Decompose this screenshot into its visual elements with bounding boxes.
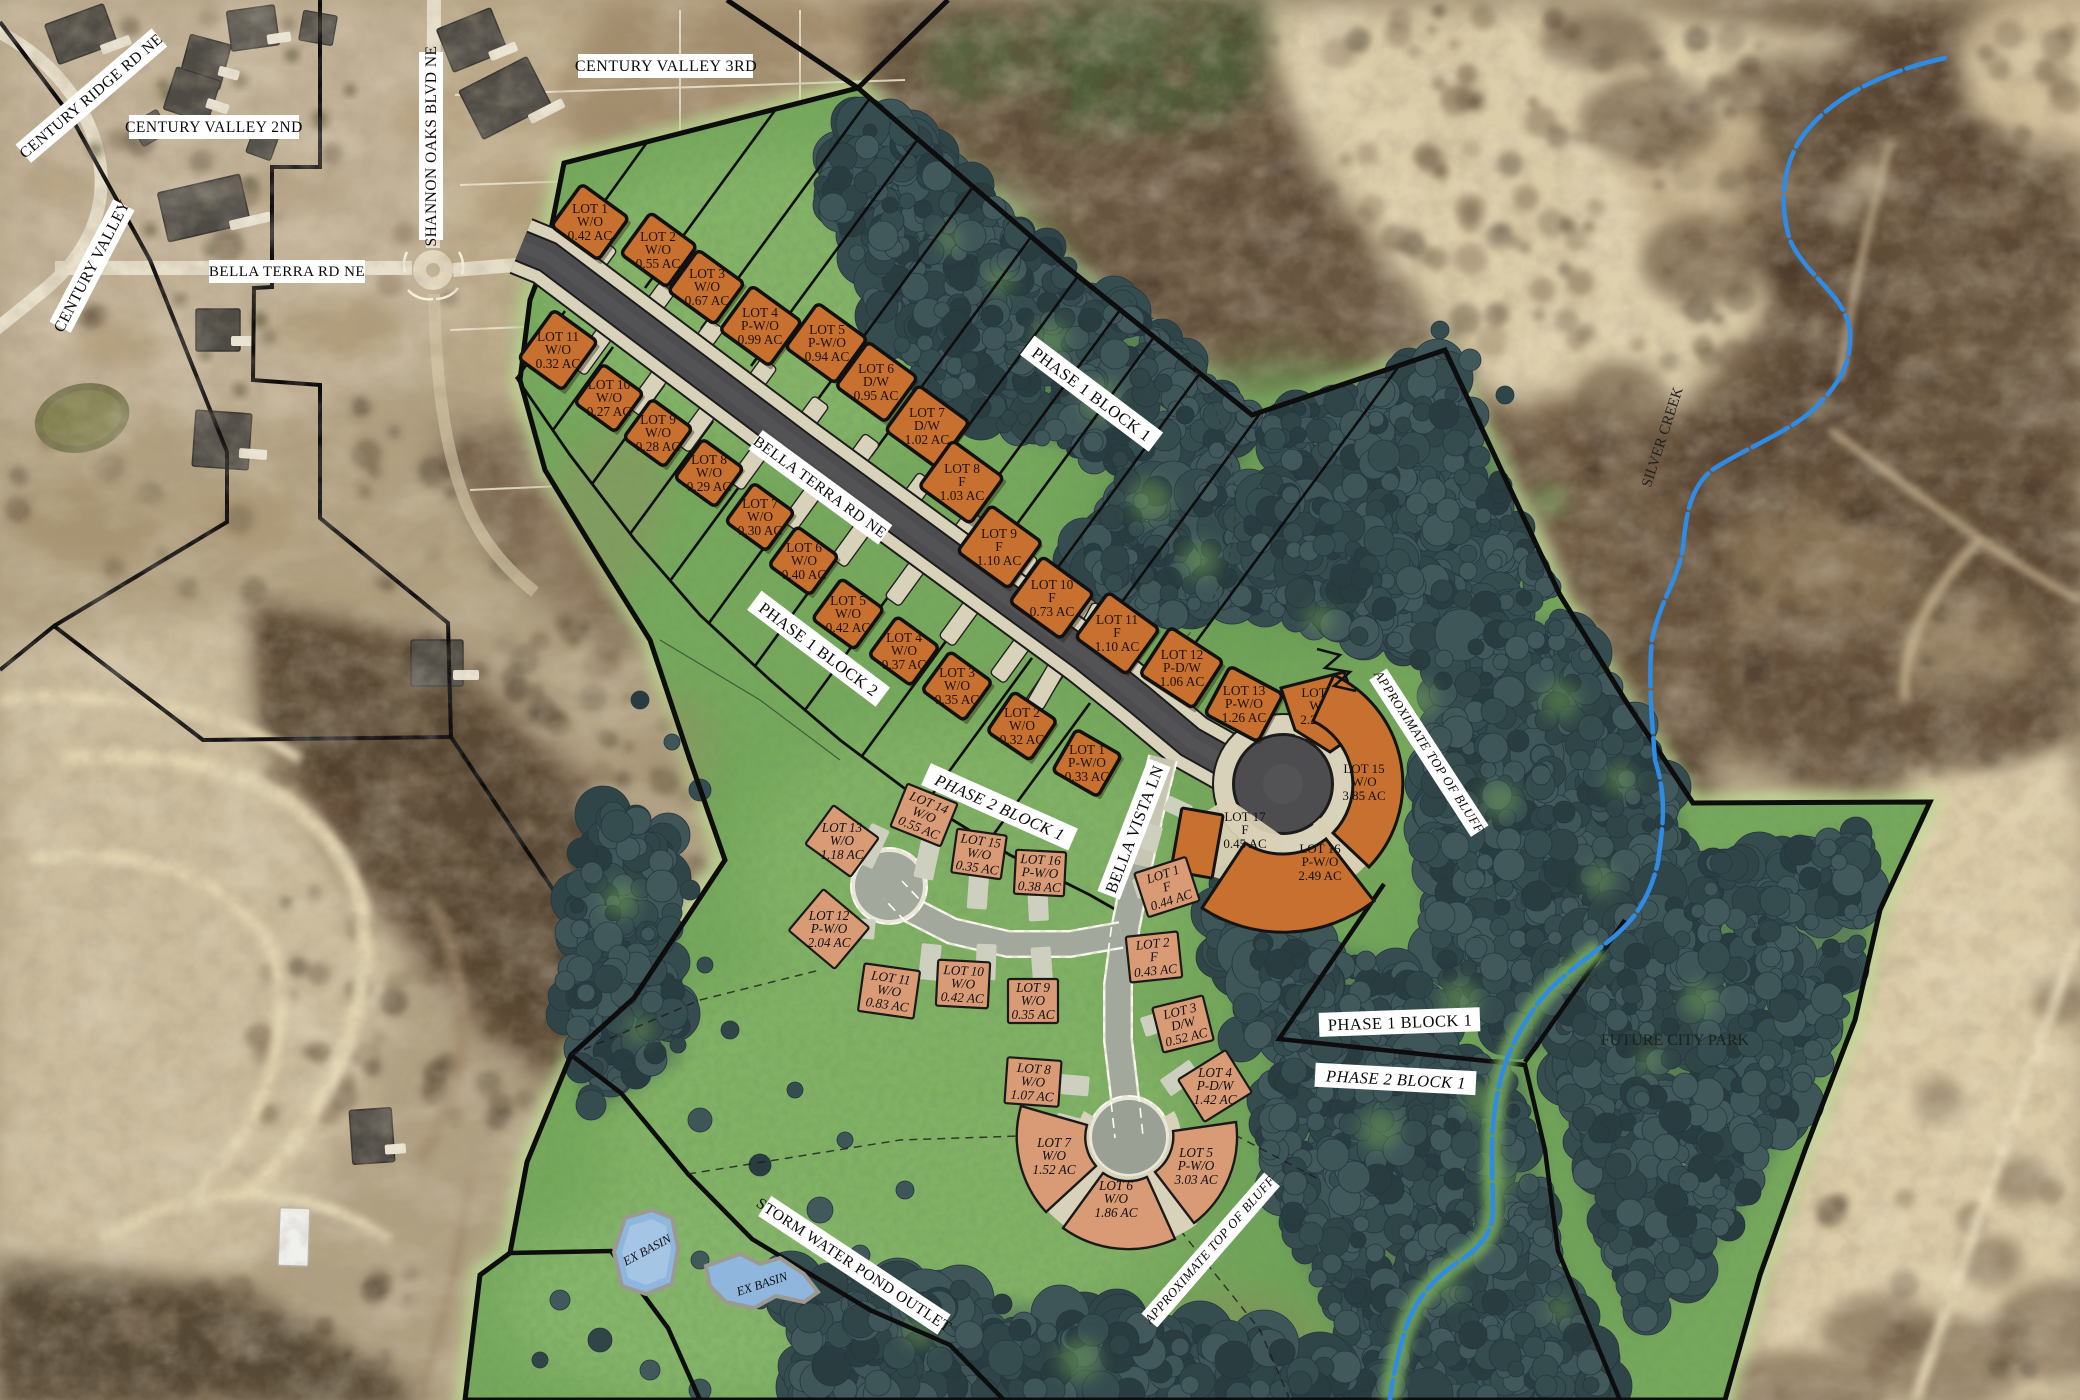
svg-text:LOT 12P-D/W1.06 AC: LOT 12P-D/W1.06 AC [1160, 647, 1205, 689]
svg-text:LOT 4P-W/O0.99 AC: LOT 4P-W/O0.99 AC [738, 305, 783, 347]
svg-text:LOT 13P-W/O1.26 AC: LOT 13P-W/O1.26 AC [1222, 683, 1267, 725]
svg-text:LOT 16P-W/O2.49 AC: LOT 16P-W/O2.49 AC [1298, 841, 1341, 883]
svg-text:LOT 5P-W/O0.94 AC: LOT 5P-W/O0.94 AC [805, 322, 850, 364]
svg-text:LOT 1P-W/O0.33 AC: LOT 1P-W/O0.33 AC [1065, 742, 1110, 784]
